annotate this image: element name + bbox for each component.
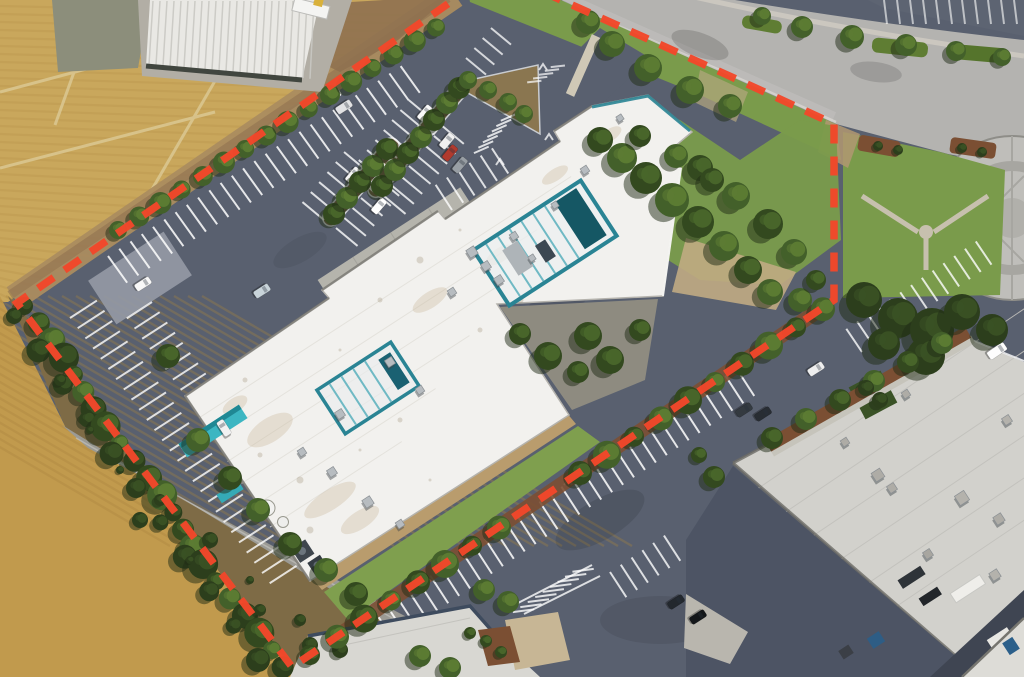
aerial-photo-canvas — [0, 0, 1024, 677]
aerial-site-photo — [0, 0, 1024, 677]
gray-green-plot — [52, 0, 150, 72]
